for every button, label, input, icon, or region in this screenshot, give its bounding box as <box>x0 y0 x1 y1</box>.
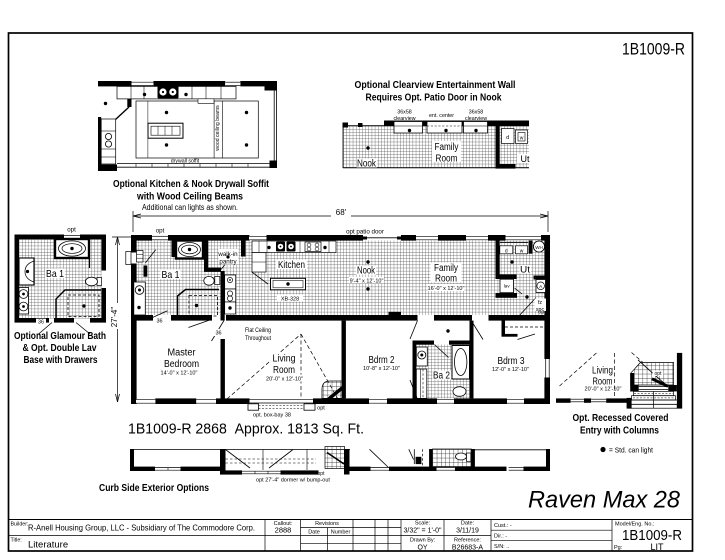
svg-text:Opt. Recessed Covered: Opt. Recessed Covered <box>573 413 669 424</box>
svg-text:Room: Room <box>435 274 457 285</box>
svg-text:Ba 1: Ba 1 <box>46 268 64 280</box>
svg-text:9'-4" x 12'-10": 9'-4" x 12'-10" <box>350 279 384 285</box>
svg-text:d: d <box>506 135 509 141</box>
svg-text:opt: opt <box>655 371 663 377</box>
svg-text:Optional Clearview Entertainme: Optional Clearview Entertainment Wall <box>355 80 516 91</box>
svg-text:Kitchen: Kitchen <box>278 260 305 271</box>
svg-text:= Std. can light: = Std. can light <box>609 445 654 454</box>
svg-text:Optional Glamour Bath: Optional Glamour Bath <box>14 331 106 342</box>
svg-text:Number: Number <box>331 530 351 536</box>
svg-text:LIT: LIT <box>650 542 664 552</box>
svg-text:Nook: Nook <box>357 266 376 277</box>
svg-text:Ba 2: Ba 2 <box>433 371 450 382</box>
svg-text:OY: OY <box>417 545 427 552</box>
svg-text:10'-8" x 12'-10": 10'-8" x 12'-10" <box>363 366 400 372</box>
svg-text:with Wood Ceiling Beams: with Wood Ceiling Beams <box>136 192 243 203</box>
svg-text:Requires Opt. Patio Door in No: Requires Opt. Patio Door in Nook <box>366 93 502 104</box>
svg-text:opt: opt <box>67 227 76 234</box>
svg-text:WH: WH <box>535 245 543 250</box>
svg-text:Literature: Literature <box>28 540 68 551</box>
svg-text:Dir.: -: Dir.: - <box>494 534 507 540</box>
svg-text:1B1009-R 2868 Approx. 1813 Sq: 1B1009-R 2868 Approx. 1813 Sq. Ft. <box>128 422 364 438</box>
svg-text:3/11/19: 3/11/19 <box>456 528 479 535</box>
svg-text:Model/Eng. No.:: Model/Eng. No.: <box>615 522 655 528</box>
svg-text:Builder:: Builder: <box>11 522 29 528</box>
svg-text:Bedroom: Bedroom <box>164 359 199 370</box>
svg-text:ent. center: ent. center <box>429 113 454 119</box>
svg-text:opt patio door: opt patio door <box>346 229 384 236</box>
svg-text:Revisions: Revisions <box>315 521 339 527</box>
svg-text:wood ceiling beams: wood ceiling beams <box>215 105 221 151</box>
svg-text:27'-4": 27'-4" <box>110 307 119 328</box>
svg-text:drywall soffit: drywall soffit <box>171 159 200 165</box>
svg-text:XB-328: XB-328 <box>281 297 299 303</box>
svg-text:Base with Drawers: Base with Drawers <box>24 355 98 366</box>
svg-text:B26683-A: B26683-A <box>452 545 483 552</box>
svg-text:Drawn By:: Drawn By: <box>410 538 436 544</box>
svg-text:36x58: 36x58 <box>397 110 411 116</box>
svg-text:Curb Side Exterior Options: Curb Side Exterior Options <box>99 483 209 494</box>
svg-text:lav: lav <box>504 284 511 289</box>
svg-text:Bdrm 3: Bdrm 3 <box>498 356 525 367</box>
svg-text:Cust.: -: Cust.: - <box>494 523 512 529</box>
svg-text:14'-0" x 12'-10": 14'-0" x 12'-10" <box>161 371 198 377</box>
svg-text:Bdrm 2: Bdrm 2 <box>369 355 395 366</box>
svg-text:36: 36 <box>38 319 44 325</box>
svg-text:36x58: 36x58 <box>469 110 483 116</box>
svg-text:opt: opt <box>156 228 165 235</box>
svg-text:68': 68' <box>336 208 347 217</box>
svg-text:w: w <box>520 136 524 142</box>
svg-text:w: w <box>520 248 524 254</box>
svg-text:Room: Room <box>436 154 458 165</box>
svg-text:S/N: ..: S/N: .. <box>494 544 510 550</box>
svg-text:Date:: Date: <box>461 521 475 527</box>
svg-text:pantry: pantry <box>219 259 237 266</box>
svg-text:Reference:: Reference: <box>454 538 481 544</box>
svg-text:d: d <box>505 248 508 254</box>
svg-text:Raven Max 28: Raven Max 28 <box>528 487 681 514</box>
svg-text:Entry with Columns: Entry with Columns <box>580 426 659 437</box>
svg-text:& Opt. Double Lav: & Opt. Double Lav <box>23 343 97 354</box>
svg-text:Ut: Ut <box>521 154 530 165</box>
svg-text:Family: Family <box>434 263 458 274</box>
svg-text:Room: Room <box>273 365 295 376</box>
svg-text:20'-0" x 12'-10": 20'-0" x 12'-10" <box>585 387 622 393</box>
svg-text:fz: fz <box>538 300 542 306</box>
svg-text:20'-0" x 12'-10": 20'-0" x 12'-10" <box>266 377 303 383</box>
svg-text:Ut: Ut <box>520 265 530 276</box>
svg-text:opt: opt <box>317 406 325 412</box>
svg-text:Throughout: Throughout <box>245 335 271 342</box>
svg-text:Scale:: Scale: <box>415 521 431 527</box>
svg-text:12'-0" x 12'-10": 12'-0" x 12'-10" <box>492 367 529 373</box>
svg-text:Pg:: Pg: <box>614 545 623 551</box>
svg-text:3/32" = 1'-0": 3/32" = 1'-0" <box>403 528 442 535</box>
svg-text:Optional Kitchen & Nook Drywal: Optional Kitchen & Nook Drywall Soffit <box>113 179 270 190</box>
svg-text:36: 36 <box>156 319 162 325</box>
svg-text:Living: Living <box>273 354 296 365</box>
svg-text:Ba 1: Ba 1 <box>162 269 180 281</box>
svg-text:Date: Date <box>308 530 320 536</box>
svg-text:opt. box-bay 38: opt. box-bay 38 <box>253 413 291 419</box>
svg-text:Family: Family <box>435 142 459 153</box>
svg-text:R-Anell Housing Group, LLC - S: R-Anell Housing Group, LLC - Subsidiary … <box>28 523 255 533</box>
svg-text:Living: Living <box>592 366 613 377</box>
svg-text:Title:: Title: <box>11 538 22 544</box>
svg-text:opt: opt <box>318 471 326 477</box>
svg-text:Master: Master <box>168 348 197 359</box>
svg-text:opt 27'-4" dormer w/ bump-out: opt 27'-4" dormer w/ bump-out <box>256 478 330 484</box>
svg-text:Additional can lights as shown: Additional can lights as shown. <box>142 203 238 212</box>
svg-text:Nook: Nook <box>357 159 377 170</box>
svg-text:36: 36 <box>215 331 221 337</box>
svg-text:2888: 2888 <box>275 526 292 535</box>
svg-text:spc: spc <box>536 307 545 313</box>
svg-text:Flat Ceiling: Flat Ceiling <box>245 327 271 334</box>
svg-text:1B1009-R: 1B1009-R <box>622 40 685 59</box>
svg-text:16'-0" x 12'-10": 16'-0" x 12'-10" <box>428 286 465 292</box>
